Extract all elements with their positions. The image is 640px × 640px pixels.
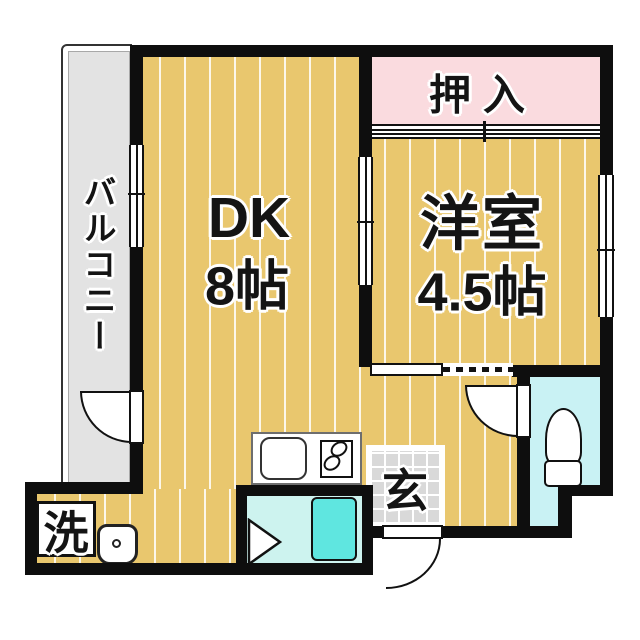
wall-balcony-bottom <box>25 482 143 494</box>
balcony-label: バルコニー <box>73 175 121 355</box>
bathroom-door-icon <box>247 518 283 566</box>
western-room-opening-dashes <box>443 363 513 376</box>
toilet-bowl-icon <box>545 408 582 468</box>
western-room-window <box>598 175 614 317</box>
toilet-door-leaf <box>516 384 531 438</box>
toilet-tank-icon <box>544 460 582 487</box>
window-glass-line <box>605 175 607 317</box>
wall-bathroom-left <box>236 485 247 571</box>
sliding-door-track-line <box>372 133 600 135</box>
bathtub-icon <box>311 497 357 561</box>
kitchen-sink-icon <box>260 437 307 480</box>
floor-plan: DK 8帖 洋室 4.5帖 押入 玄 洗 バルコニー <box>0 0 640 640</box>
wall-left-outer <box>25 482 37 575</box>
sliding-door-track-line <box>372 129 600 131</box>
window-tick <box>597 249 615 251</box>
toilet-room-lower <box>529 486 558 526</box>
balcony-door-leaf <box>129 390 144 444</box>
dk-western-sliding-door <box>358 157 373 285</box>
closet-sliding-door <box>372 124 600 139</box>
window-tick <box>357 221 374 223</box>
western-room-size-label: 4.5帖 <box>417 248 546 327</box>
entry-door-swing-icon <box>386 539 441 589</box>
sliding-door-tick <box>483 121 486 142</box>
closet-label: 押入 <box>429 62 537 123</box>
wall-bath-entrance-divider <box>362 485 373 575</box>
western-room-sliding-panel <box>370 363 443 376</box>
wall-bathroom-top <box>236 485 373 496</box>
entrance-label: 玄 <box>382 455 428 521</box>
dk-room-size-label: 8帖 <box>205 242 289 321</box>
entry-door-leaf <box>382 525 443 539</box>
window-glass-line <box>136 145 138 247</box>
dashed-line <box>443 367 513 372</box>
laundry-label: 洗 <box>43 497 88 562</box>
wall-bottom-left <box>25 563 373 575</box>
balcony-window <box>129 145 144 247</box>
washing-machine-dial-icon <box>112 539 121 548</box>
window-tick <box>128 193 145 195</box>
